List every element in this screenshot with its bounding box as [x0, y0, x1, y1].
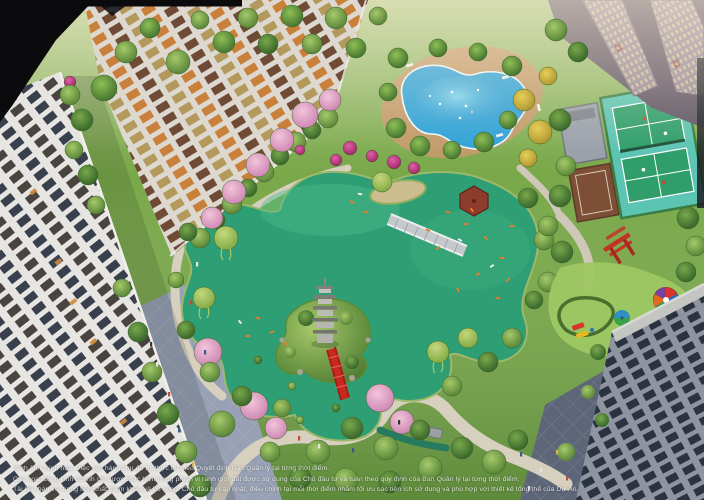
legal-disclaimer: Hình ảnh minh họa. Việc vận hành khu đô …	[13, 464, 685, 496]
disclaimer-line-2: Các hoạt động kinh doanh chỉ được thực h…	[13, 475, 685, 486]
disclaimer-line-1: Hình ảnh minh họa. Việc vận hành khu đô …	[13, 464, 685, 475]
aerial-render-image: 21 21	[0, 0, 704, 500]
scene-svg: 21 21	[0, 0, 704, 500]
disclaimer-line-3: Tài liệu bán về mang tính chất tham khảo…	[13, 485, 685, 496]
